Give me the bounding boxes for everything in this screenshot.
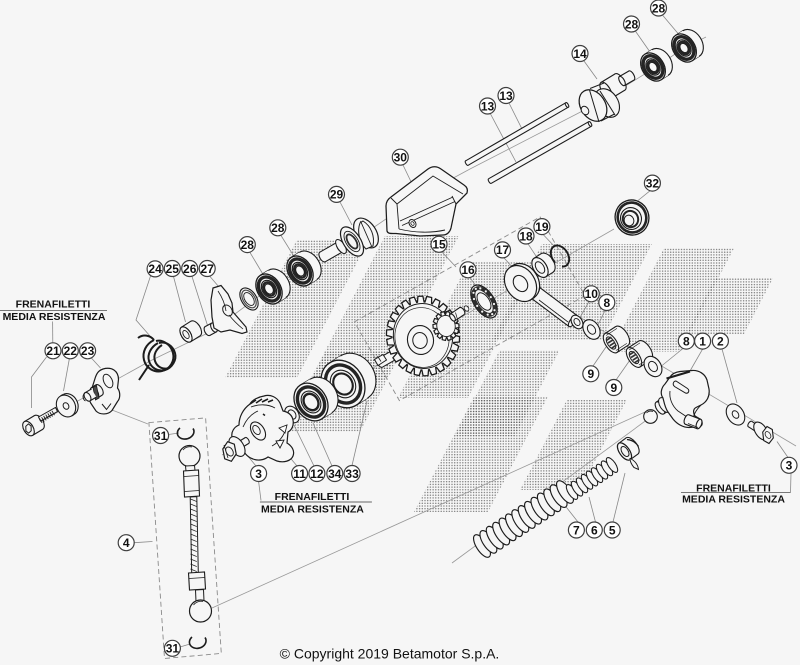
svg-text:FRENAFILETTI: FRENAFILETTI — [16, 299, 91, 311]
svg-text:13: 13 — [481, 99, 495, 113]
svg-text:3: 3 — [255, 467, 262, 481]
svg-text:8: 8 — [683, 334, 690, 348]
svg-text:29: 29 — [330, 188, 344, 202]
svg-text:23: 23 — [81, 344, 95, 358]
svg-text:11: 11 — [293, 467, 306, 481]
svg-text:FRENAFILETTI: FRENAFILETTI — [275, 491, 350, 503]
svg-text:5: 5 — [609, 523, 616, 537]
svg-text:31: 31 — [166, 642, 180, 656]
svg-text:24: 24 — [148, 262, 162, 276]
svg-text:22: 22 — [64, 344, 78, 358]
svg-text:13: 13 — [499, 89, 513, 103]
svg-text:27: 27 — [201, 262, 215, 276]
svg-text:18: 18 — [519, 229, 533, 243]
svg-text:31: 31 — [154, 429, 168, 443]
svg-text:30: 30 — [394, 151, 408, 165]
svg-text:28: 28 — [625, 17, 639, 31]
svg-text:MEDIA RESISTENZA: MEDIA RESISTENZA — [261, 504, 364, 516]
svg-text:26: 26 — [183, 262, 197, 276]
svg-text:9: 9 — [587, 367, 594, 381]
svg-text:28: 28 — [241, 238, 255, 252]
svg-text:3: 3 — [786, 459, 793, 473]
svg-text:© Copyright 2019 Betamotor S.p: © Copyright 2019 Betamotor S.p.A. — [280, 646, 500, 662]
svg-text:19: 19 — [535, 220, 549, 234]
svg-text:28: 28 — [652, 1, 666, 15]
svg-text:12: 12 — [310, 467, 324, 481]
svg-text:MEDIA RESISTENZA: MEDIA RESISTENZA — [3, 311, 106, 323]
svg-text:6: 6 — [591, 523, 598, 537]
svg-text:4: 4 — [123, 536, 130, 550]
svg-text:17: 17 — [496, 243, 510, 257]
svg-text:32: 32 — [646, 176, 660, 190]
svg-text:28: 28 — [271, 221, 285, 235]
svg-text:8: 8 — [603, 296, 610, 310]
svg-text:25: 25 — [166, 262, 180, 276]
svg-text:MEDIA RESISTENZA: MEDIA RESISTENZA — [682, 494, 785, 506]
svg-text:10: 10 — [585, 287, 599, 301]
svg-text:21: 21 — [46, 344, 60, 358]
svg-text:14: 14 — [573, 47, 587, 61]
svg-text:15: 15 — [432, 238, 446, 252]
svg-text:2: 2 — [717, 334, 724, 348]
svg-text:7: 7 — [573, 523, 580, 537]
svg-text:9: 9 — [610, 381, 617, 395]
svg-text:16: 16 — [461, 263, 475, 277]
svg-text:1: 1 — [699, 334, 706, 348]
svg-text:33: 33 — [345, 467, 359, 481]
svg-text:34: 34 — [328, 467, 342, 481]
